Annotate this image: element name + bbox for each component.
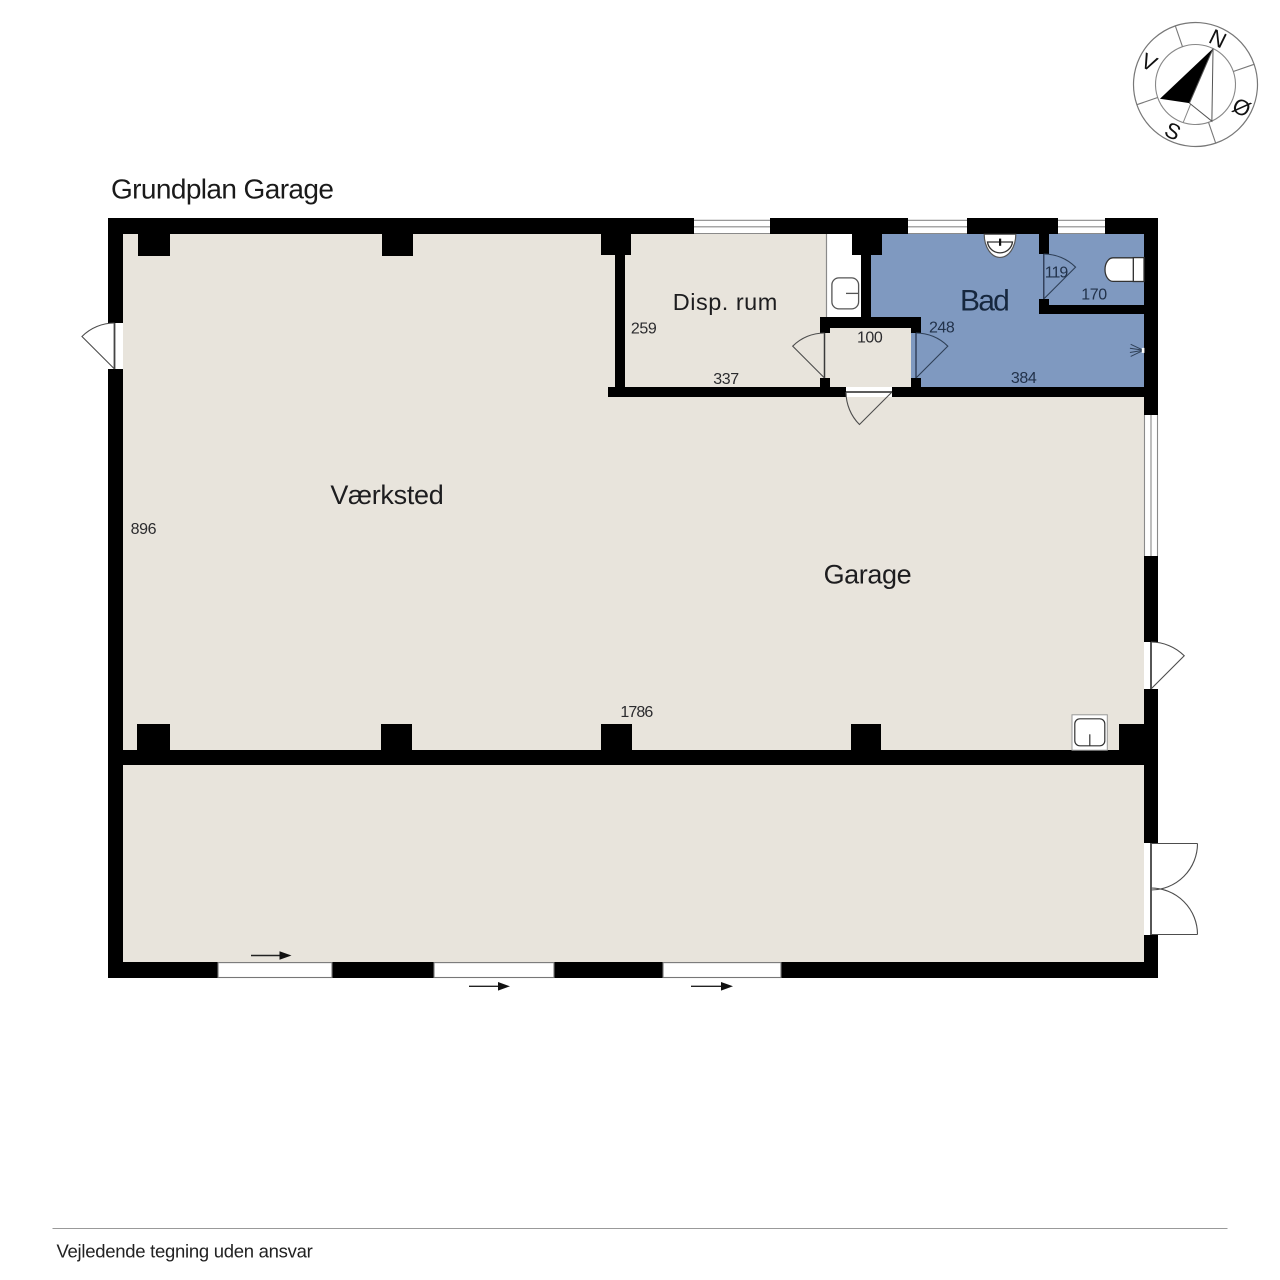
svg-text:Værksted: Værksted (330, 480, 443, 510)
svg-text:896: 896 (131, 521, 157, 538)
svg-text:Garage: Garage (824, 559, 912, 589)
svg-text:170: 170 (1081, 287, 1107, 304)
svg-text:Grundplan Garage: Grundplan Garage (111, 174, 333, 205)
svg-text:119: 119 (1045, 265, 1069, 282)
svg-text:337: 337 (713, 371, 739, 388)
svg-text:Bad: Bad (960, 285, 1008, 318)
svg-text:100: 100 (857, 329, 883, 346)
svg-text:259: 259 (631, 321, 657, 338)
svg-text:384: 384 (1011, 370, 1037, 387)
svg-text:Vejledende tegning uden ansvar: Vejledende tegning uden ansvar (57, 1241, 313, 1262)
svg-text:248: 248 (929, 319, 955, 336)
svg-text:1786: 1786 (620, 704, 653, 721)
svg-text:Disp. rum: Disp. rum (673, 289, 778, 315)
